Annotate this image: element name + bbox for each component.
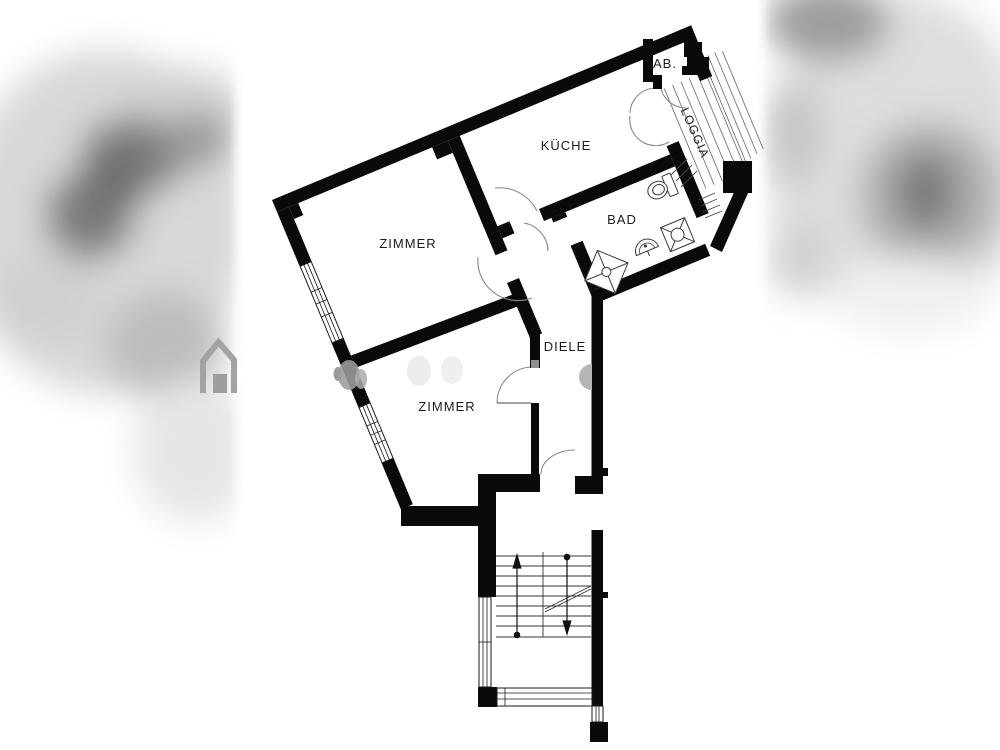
svg-text:ZIMMER: ZIMMER: [418, 399, 475, 414]
svg-text:AB.: AB.: [653, 56, 677, 71]
svg-text:KÜCHE: KÜCHE: [541, 138, 592, 153]
svg-text:BAD: BAD: [607, 212, 637, 227]
svg-text:ZIMMER: ZIMMER: [379, 236, 436, 251]
svg-text:DIELE: DIELE: [544, 339, 587, 354]
